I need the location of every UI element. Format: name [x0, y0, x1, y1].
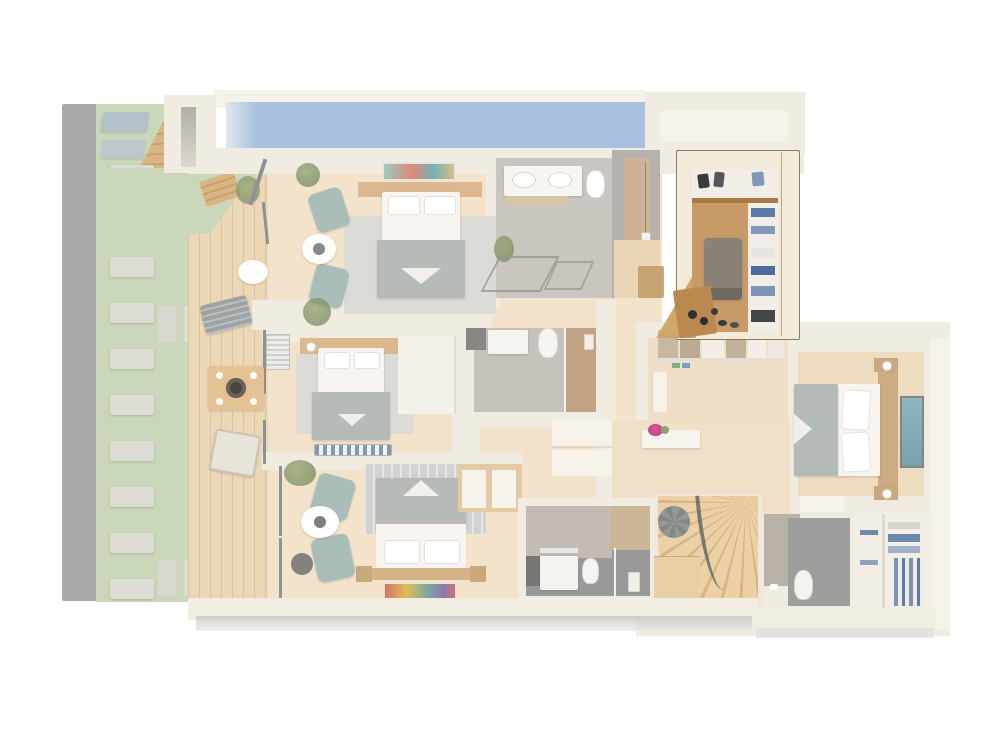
bedroom4-pillow — [424, 540, 460, 564]
bedroom3-blanket-fold — [794, 414, 812, 444]
bedroom2-pillow — [354, 352, 380, 369]
closet2-folded-stack — [888, 522, 920, 529]
closet2-blue-item — [860, 530, 878, 535]
bath1-wood-cabinet — [638, 266, 664, 298]
bedroom4-table-bowl — [314, 516, 326, 528]
floor-plan-render — [0, 0, 1001, 733]
shower-fixture — [628, 572, 640, 592]
plant — [303, 298, 331, 326]
stepping-slab — [110, 349, 154, 369]
bathroom4-door — [800, 496, 844, 512]
deck-stool — [250, 372, 257, 379]
bedroom1-pillow — [424, 196, 456, 215]
closet-dark-box — [751, 310, 775, 322]
shower-glass — [564, 328, 566, 412]
folded-clothes-blue — [751, 226, 775, 234]
bedroom2-sconce — [306, 342, 316, 352]
bedroom2-pillow — [324, 352, 350, 369]
closet2-books — [894, 558, 924, 606]
stepping-slab — [110, 257, 154, 277]
plant — [284, 460, 316, 486]
stepping-slab-small — [158, 306, 176, 342]
laundry-door — [652, 372, 667, 412]
bedside-lamp — [882, 361, 892, 371]
deck-stool — [250, 398, 257, 405]
bathroom4-soap — [770, 584, 778, 590]
bedroom1-blanket-fold — [401, 268, 441, 284]
bathroom2-toilet — [538, 328, 558, 358]
entry-wall-shadow — [181, 107, 196, 167]
hanging-clothes — [713, 172, 725, 188]
flower-leaves — [661, 426, 669, 434]
wall-white-block-1 — [552, 420, 614, 446]
closet2-blue-item — [860, 560, 878, 565]
laundry-deco — [672, 363, 680, 368]
bedroom3-pillow — [841, 431, 871, 472]
folded-clothes-blue — [751, 266, 775, 275]
shower-fixture — [584, 334, 594, 350]
bathroom3-tan-wall — [610, 506, 650, 550]
bathroom3-toilet — [582, 558, 599, 584]
deck-lounge-chair — [209, 428, 262, 477]
bedroom4-dark-pot — [291, 553, 313, 575]
stepping-slab — [110, 303, 154, 323]
bathroom1-towel-rail — [507, 196, 569, 205]
top-right-wall-inset — [660, 110, 788, 142]
deck-stool — [216, 398, 223, 405]
stepping-slab — [110, 579, 154, 599]
bedroom2-blanket-fold — [338, 414, 366, 426]
ground-shadow-right — [756, 628, 934, 638]
closet-shoes — [718, 320, 727, 326]
laundry-shelf — [658, 358, 784, 362]
bedroom2-wardrobe — [398, 336, 456, 414]
glass-door-frame — [279, 466, 282, 536]
right-outer-wall — [930, 338, 950, 630]
fire-bowl — [226, 378, 246, 398]
hanging-clothes — [697, 173, 710, 188]
glass-door-frame — [263, 420, 266, 464]
closet-door-edge — [781, 152, 782, 336]
closet-shoes — [730, 322, 739, 328]
closet-accessory — [700, 317, 708, 325]
bedside-lamp — [882, 489, 892, 499]
wardrobe-door — [462, 470, 486, 508]
pendant-light-cord — [645, 162, 646, 234]
garden-stone-wall — [62, 104, 98, 601]
wardrobe-door — [492, 470, 516, 508]
pool-edge-fade — [226, 102, 256, 150]
bedroom4-duvet-fold — [403, 480, 439, 496]
bedroom3-wall-art — [900, 396, 924, 468]
bedroom2-shutter-panel — [266, 334, 290, 370]
swimming-pool — [226, 102, 646, 150]
closet-accessory — [688, 310, 697, 319]
bathroom3-vanity — [540, 556, 578, 590]
wall-white-block-2 — [552, 450, 614, 476]
deck-side-table — [238, 260, 268, 284]
bedroom1-table-bowl — [313, 243, 325, 255]
stepping-slab — [110, 487, 154, 507]
bathroom3-dark-cabinet — [526, 556, 540, 586]
closet2-folded-stack-blue — [888, 534, 920, 542]
bedroom4-nightstand — [470, 566, 486, 582]
ground-shadow — [196, 616, 752, 631]
bedroom4-nightstand — [356, 566, 372, 582]
bathroom3-mirror — [540, 548, 578, 553]
plant — [296, 163, 320, 187]
bathroom1-sink — [548, 172, 572, 188]
closet-accessory — [711, 308, 718, 315]
bedroom3-pillow — [841, 389, 871, 430]
stairs-plant — [658, 506, 690, 538]
bedroom2-bench — [314, 444, 392, 456]
bathroom2-dark-shelf — [466, 328, 486, 350]
glass-door-frame — [279, 538, 282, 598]
bedroom4-footboard — [370, 568, 472, 580]
bathroom2-sink — [488, 330, 528, 354]
stepping-slab-small — [158, 560, 176, 596]
folded-clothes-white — [751, 248, 775, 258]
bedroom1-pillow — [388, 196, 420, 215]
bathroom1-sink — [512, 172, 536, 188]
laundry-deco — [682, 363, 690, 368]
folded-clothes-blue — [751, 286, 775, 296]
garden-pad-blue-1 — [101, 112, 150, 132]
deck-stool — [216, 372, 223, 379]
stepping-slab — [110, 395, 154, 415]
stepping-slab — [110, 533, 154, 553]
bedroom3-headboard — [878, 370, 898, 488]
shower-glass — [614, 548, 616, 598]
hanging-clothes-blue — [751, 172, 764, 187]
stepping-slab — [110, 441, 154, 461]
bathroom4-toilet — [794, 570, 813, 600]
bedroom4-pillow — [384, 540, 420, 564]
garden-pad-blue-2 — [101, 140, 146, 158]
closet2-divider — [882, 514, 885, 612]
folded-clothes-blue — [751, 208, 775, 217]
bedroom1-wall-art — [382, 162, 456, 181]
bathroom1-toilet — [586, 170, 605, 198]
closet2-folded-stack-blue — [888, 546, 920, 553]
